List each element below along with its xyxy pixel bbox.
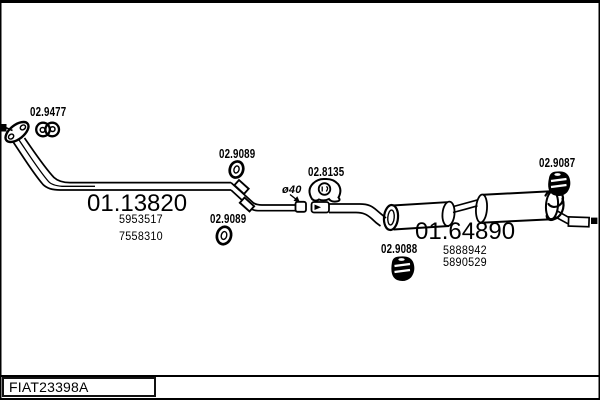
mid-pipe-drawing	[329, 204, 386, 226]
part-label-mid-mount: 02.9088	[381, 243, 417, 256]
part-label-rear-silencer: 01.64890	[415, 220, 515, 244]
intermediate-pipe-drawing	[453, 200, 478, 213]
pipe-diameter-note: ø40	[282, 185, 302, 196]
rubber-mount-rear-icon	[548, 171, 570, 196]
pipe-end-collar	[296, 202, 307, 212]
pipe-clamp-collar	[312, 202, 330, 213]
part-label-rear-mount: 02.9087	[539, 157, 575, 170]
tailpipe-drawing	[555, 211, 598, 227]
double-ring-clamp-icon	[36, 123, 59, 137]
exhaust-diagram: 02.9477 01.13820 5953517 7558310 02.9089…	[0, 0, 600, 400]
mount-bracket-icon	[309, 179, 340, 202]
oe-number: 5890529	[443, 256, 487, 268]
oe-number: 5953517	[119, 213, 163, 225]
rubber-mount-mid-icon	[391, 256, 414, 281]
tailpipe-end-marker	[591, 218, 597, 224]
oe-number: 7558310	[119, 230, 163, 242]
ring-gasket-lower-icon	[215, 225, 233, 245]
drawing-code-box: FIAT23398A	[2, 377, 156, 397]
part-label-gasket-upper: 02.9089	[219, 148, 255, 161]
part-label-front-clamp: 02.9477	[30, 106, 66, 119]
drawing-code-label: FIAT23398A	[9, 379, 89, 395]
part-label-bracket: 02.8135	[308, 166, 344, 179]
ring-gasket-upper-icon	[228, 160, 246, 180]
part-label-gasket-lower: 02.9089	[210, 213, 246, 226]
